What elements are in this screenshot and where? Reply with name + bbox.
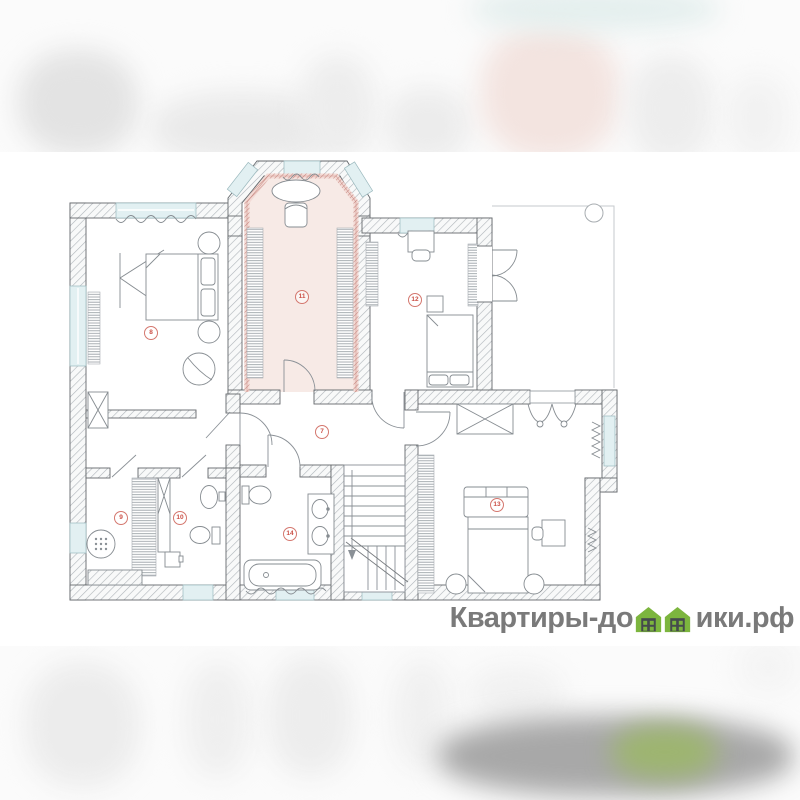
double-bed-icon xyxy=(468,517,528,593)
toilet-tank xyxy=(212,527,220,544)
furniture-room-10 xyxy=(165,486,225,568)
watermark-text-suffix: ики.рф xyxy=(696,603,794,635)
toilet-icon xyxy=(190,527,210,544)
green-houses-icon xyxy=(634,605,695,634)
wardrobe-bedroom12-left xyxy=(366,242,378,306)
room-number-badge-dressing-hall: 11 xyxy=(295,290,309,304)
boiler-icon xyxy=(165,552,180,567)
furniture-bedroom-13 xyxy=(446,391,600,594)
door-corridor-left xyxy=(240,413,272,445)
nightstand-icon xyxy=(198,321,220,343)
oval-table-icon xyxy=(272,180,320,202)
room-number-badge-bedroom-left: 8 xyxy=(144,326,158,340)
armchair-icon xyxy=(183,353,215,385)
window-right-bump xyxy=(604,416,615,466)
window-bottom-1 xyxy=(183,585,213,600)
pillow-icon xyxy=(450,375,469,385)
toilet-tank xyxy=(242,486,249,504)
furniture-bedroom-12 xyxy=(398,231,473,387)
door-bedroom12 xyxy=(372,392,404,428)
wash-basin-icon xyxy=(201,486,218,509)
radiator-icon xyxy=(592,422,600,458)
room-number-badge-bedroom-bottom-right: 13 xyxy=(490,498,504,512)
wardrobe-room11-left xyxy=(247,228,263,378)
wardrobe-bedroom12-right xyxy=(468,244,478,306)
wardrobe-room9 xyxy=(132,478,156,576)
pouf-icon xyxy=(446,574,466,594)
door-bedroom8 xyxy=(206,412,230,438)
french-doors-icon xyxy=(477,246,517,302)
door-bedroom13 xyxy=(416,412,450,446)
shaft-partition xyxy=(158,478,170,552)
hanger-niche xyxy=(530,391,575,403)
room-number-badge-wc: 10 xyxy=(173,511,187,525)
terrace-outline xyxy=(492,204,614,388)
toilet-icon xyxy=(249,486,271,504)
room-number-badge-bedroom-top-right: 12 xyxy=(408,293,422,307)
wardrobe-room11-right xyxy=(337,228,353,378)
nightstand-icon xyxy=(427,296,443,312)
watermark-text-prefix: Квартиры-до xyxy=(450,603,633,635)
desk-icon xyxy=(542,520,565,546)
staircase-down xyxy=(344,465,408,592)
hanger-rail-icon xyxy=(528,404,576,422)
room-number-badge-corridor: 7 xyxy=(315,425,329,439)
window-bay-top xyxy=(284,161,320,174)
window-left-lower xyxy=(70,523,86,553)
door-room10 xyxy=(182,455,206,477)
floor-plan xyxy=(0,0,800,800)
pillow-icon xyxy=(201,289,215,316)
furniture-bedroom-8 xyxy=(88,216,220,429)
room-number-badge-bathroom: 14 xyxy=(283,527,297,541)
site-watermark: Квартиры-до ики.рф xyxy=(450,597,794,635)
wardrobe-bedroom13 xyxy=(418,455,434,593)
wardrobe-bedroom8 xyxy=(88,292,100,364)
pillow-icon xyxy=(429,375,448,385)
pouf-icon xyxy=(524,574,544,594)
door-room9 xyxy=(112,455,136,477)
nightstand-icon xyxy=(198,232,220,254)
pillow-icon xyxy=(201,258,215,285)
bench-icon xyxy=(88,570,142,585)
chair-icon xyxy=(532,527,543,540)
sink-icon xyxy=(312,500,328,519)
sink-icon xyxy=(312,527,328,546)
door-bathroom14 xyxy=(268,435,300,467)
desk-icon xyxy=(408,231,434,252)
room-number-badge-shower-room: 9 xyxy=(114,511,128,525)
chair-icon xyxy=(412,250,430,261)
